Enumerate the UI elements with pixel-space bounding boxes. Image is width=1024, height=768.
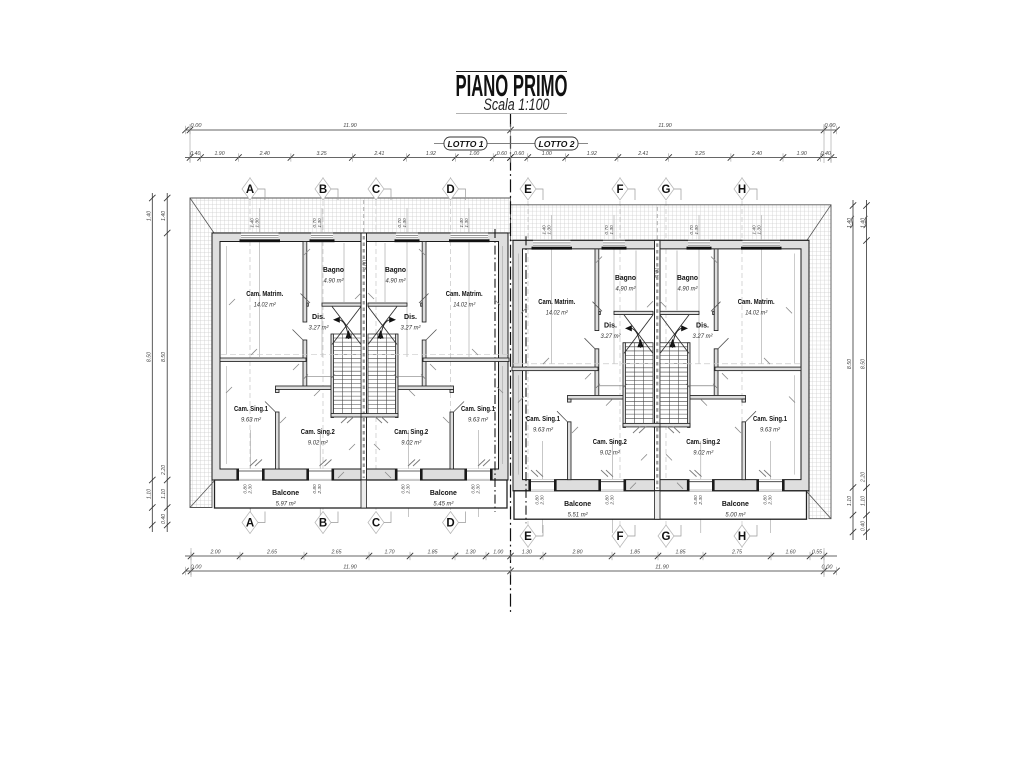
svg-text:Cam. Matrim.: Cam. Matrim.: [738, 297, 775, 306]
svg-text:Balcone: Balcone: [564, 499, 591, 508]
svg-text:3.25: 3.25: [317, 151, 327, 157]
svg-text:1.92: 1.92: [426, 151, 436, 157]
svg-text:Bagno: Bagno: [615, 273, 636, 282]
svg-text:2.65: 2.65: [330, 550, 341, 556]
svg-text:0.40: 0.40: [190, 151, 200, 157]
svg-text:9.63 m²: 9.63 m²: [533, 426, 554, 433]
svg-text:1.30: 1.30: [254, 218, 260, 228]
svg-text:F: F: [616, 184, 623, 196]
svg-text:1.10: 1.10: [847, 496, 853, 506]
svg-text:1.30: 1.30: [546, 225, 552, 235]
svg-text:4.90 m²: 4.90 m²: [324, 278, 345, 285]
svg-text:11.90: 11.90: [343, 565, 357, 571]
svg-text:2.00: 2.00: [209, 550, 220, 556]
svg-text:0.00: 0.00: [191, 123, 203, 129]
svg-text:Dis.: Dis.: [696, 321, 709, 330]
svg-text:H: H: [738, 531, 746, 543]
svg-text:5.97 m²: 5.97 m²: [276, 501, 297, 508]
svg-text:9.02 m²: 9.02 m²: [600, 450, 621, 457]
svg-text:Balcone: Balcone: [272, 488, 299, 497]
svg-text:8.50: 8.50: [161, 352, 167, 362]
svg-text:11.90: 11.90: [343, 123, 357, 129]
svg-text:1.85: 1.85: [675, 550, 685, 556]
svg-text:1.00: 1.00: [469, 151, 479, 157]
svg-text:9.63 m²: 9.63 m²: [241, 417, 262, 424]
svg-text:Bagno: Bagno: [385, 265, 406, 274]
svg-text:1.70: 1.70: [384, 550, 394, 556]
svg-text:2.65: 2.65: [266, 550, 277, 556]
svg-text:A: A: [246, 184, 254, 196]
svg-text:B: B: [319, 518, 327, 530]
svg-text:4.90 m²: 4.90 m²: [678, 285, 699, 292]
svg-text:0.00: 0.00: [825, 123, 837, 129]
svg-text:2.30: 2.30: [768, 495, 774, 506]
svg-text:Cam. Sing.1: Cam. Sing.1: [234, 404, 269, 413]
svg-text:8.50: 8.50: [146, 352, 152, 362]
svg-text:2.30: 2.30: [248, 484, 254, 495]
svg-text:Bagno: Bagno: [677, 273, 698, 282]
svg-text:2.41: 2.41: [373, 151, 384, 157]
svg-text:Cam. Matrim.: Cam. Matrim.: [246, 289, 283, 298]
svg-text:0.40: 0.40: [861, 521, 867, 531]
svg-text:1.90: 1.90: [797, 151, 807, 157]
svg-text:Cam. Sing.2: Cam. Sing.2: [301, 427, 335, 436]
svg-text:Cam. Sing.2: Cam. Sing.2: [593, 437, 627, 446]
svg-text:1.00: 1.00: [493, 550, 503, 556]
svg-text:1.30: 1.30: [317, 218, 323, 228]
svg-text:D: D: [446, 518, 454, 530]
svg-text:2.20: 2.20: [861, 472, 867, 483]
svg-text:14.02 m²: 14.02 m²: [254, 302, 277, 309]
svg-text:2.75: 2.75: [731, 550, 742, 556]
svg-text:Dis.: Dis.: [312, 312, 325, 321]
svg-text:11.90: 11.90: [655, 565, 669, 571]
svg-text:2.40: 2.40: [751, 151, 762, 157]
svg-text:E: E: [524, 531, 532, 543]
svg-text:14.02 m²: 14.02 m²: [453, 302, 476, 309]
svg-text:14.02 m²: 14.02 m²: [745, 310, 768, 317]
svg-text:1.30: 1.30: [465, 550, 475, 556]
svg-text:14.02 m²: 14.02 m²: [546, 310, 569, 317]
svg-text:Balcone: Balcone: [430, 488, 457, 497]
svg-text:Cam. Sing.1: Cam. Sing.1: [526, 414, 561, 423]
svg-text:1.30: 1.30: [522, 550, 532, 556]
svg-text:4.90 m²: 4.90 m²: [386, 278, 407, 285]
svg-text:Cam. Sing.2: Cam. Sing.2: [686, 437, 720, 446]
svg-text:Dis.: Dis.: [604, 321, 617, 330]
svg-text:2.30: 2.30: [698, 495, 704, 506]
svg-text:8.50: 8.50: [847, 359, 853, 369]
svg-text:Cam. Sing.2: Cam. Sing.2: [394, 427, 428, 436]
svg-text:0.55: 0.55: [812, 550, 822, 556]
svg-text:G: G: [662, 184, 671, 196]
svg-text:3.27 m²: 3.27 m²: [309, 325, 330, 332]
svg-text:1.85: 1.85: [630, 550, 640, 556]
svg-text:4.90 m²: 4.90 m²: [616, 285, 637, 292]
svg-text:Cam. Sing.1: Cam. Sing.1: [753, 414, 788, 423]
svg-text:C: C: [372, 518, 380, 530]
svg-text:3.25: 3.25: [695, 151, 705, 157]
svg-text:0.60: 0.60: [514, 151, 524, 157]
svg-text:0.00: 0.00: [822, 565, 834, 571]
svg-text:9.63 m²: 9.63 m²: [760, 426, 781, 433]
svg-text:1.30: 1.30: [609, 225, 615, 235]
svg-text:2.40: 2.40: [259, 151, 270, 157]
svg-text:3.27 m²: 3.27 m²: [601, 333, 622, 340]
svg-text:2.30: 2.30: [609, 495, 615, 506]
svg-text:1.30: 1.30: [756, 225, 762, 235]
svg-text:3.27 m²: 3.27 m²: [693, 333, 714, 340]
svg-text:9.02 m²: 9.02 m²: [693, 450, 714, 457]
svg-text:11.90: 11.90: [658, 123, 672, 129]
svg-text:2.30: 2.30: [476, 484, 482, 495]
svg-text:2.30: 2.30: [317, 484, 323, 495]
svg-text:2.80: 2.80: [571, 550, 582, 556]
svg-text:5.51 m²: 5.51 m²: [568, 512, 589, 519]
svg-text:0.40: 0.40: [821, 151, 831, 157]
svg-text:2.30: 2.30: [540, 495, 546, 506]
svg-text:Balcone: Balcone: [722, 499, 749, 508]
svg-text:Cam. Sing.1: Cam. Sing.1: [461, 404, 496, 413]
svg-text:H: H: [738, 184, 746, 196]
svg-text:0.00: 0.00: [191, 565, 203, 571]
svg-text:A: A: [246, 518, 254, 530]
svg-text:B: B: [319, 184, 327, 196]
svg-text:1.40: 1.40: [161, 211, 167, 221]
svg-text:LOTTO 2: LOTTO 2: [539, 139, 575, 149]
svg-text:1.85: 1.85: [427, 550, 437, 556]
svg-text:Scala 1:100: Scala 1:100: [484, 96, 551, 114]
svg-text:1.90: 1.90: [214, 151, 224, 157]
svg-text:2.20: 2.20: [161, 465, 167, 476]
svg-text:D: D: [446, 184, 454, 196]
svg-text:1.10: 1.10: [861, 496, 867, 506]
svg-text:8.50: 8.50: [861, 359, 867, 369]
svg-text:Bagno: Bagno: [323, 265, 344, 274]
svg-text:1.92: 1.92: [587, 151, 597, 157]
svg-text:1.40: 1.40: [146, 211, 152, 221]
svg-text:5.00 m²: 5.00 m²: [725, 512, 746, 519]
svg-text:LOTTO 1: LOTTO 1: [448, 139, 484, 149]
svg-text:Dis.: Dis.: [404, 312, 417, 321]
svg-text:1.30: 1.30: [402, 218, 408, 228]
svg-text:G: G: [662, 531, 671, 543]
svg-text:F: F: [616, 531, 623, 543]
svg-text:C: C: [372, 184, 380, 196]
svg-text:9.63 m²: 9.63 m²: [468, 417, 489, 424]
svg-text:2.30: 2.30: [406, 484, 412, 495]
svg-text:1.10: 1.10: [146, 489, 152, 499]
svg-text:1.60: 1.60: [785, 550, 795, 556]
svg-text:1.30: 1.30: [694, 225, 700, 235]
svg-text:5.45 m²: 5.45 m²: [433, 501, 454, 508]
svg-text:1.10: 1.10: [161, 489, 167, 499]
svg-text:9.02 m²: 9.02 m²: [308, 440, 329, 447]
svg-text:9.02 m²: 9.02 m²: [401, 440, 422, 447]
svg-text:E: E: [524, 184, 532, 196]
svg-text:1.30: 1.30: [464, 218, 470, 228]
svg-text:Cam. Matrim.: Cam. Matrim.: [538, 297, 575, 306]
svg-text:1.00: 1.00: [542, 151, 552, 157]
svg-text:3.27 m²: 3.27 m²: [401, 325, 422, 332]
svg-text:Cam. Matrim.: Cam. Matrim.: [446, 289, 483, 298]
svg-text:0.40: 0.40: [161, 514, 167, 524]
svg-text:2.41: 2.41: [637, 151, 648, 157]
svg-text:0.60: 0.60: [497, 151, 507, 157]
